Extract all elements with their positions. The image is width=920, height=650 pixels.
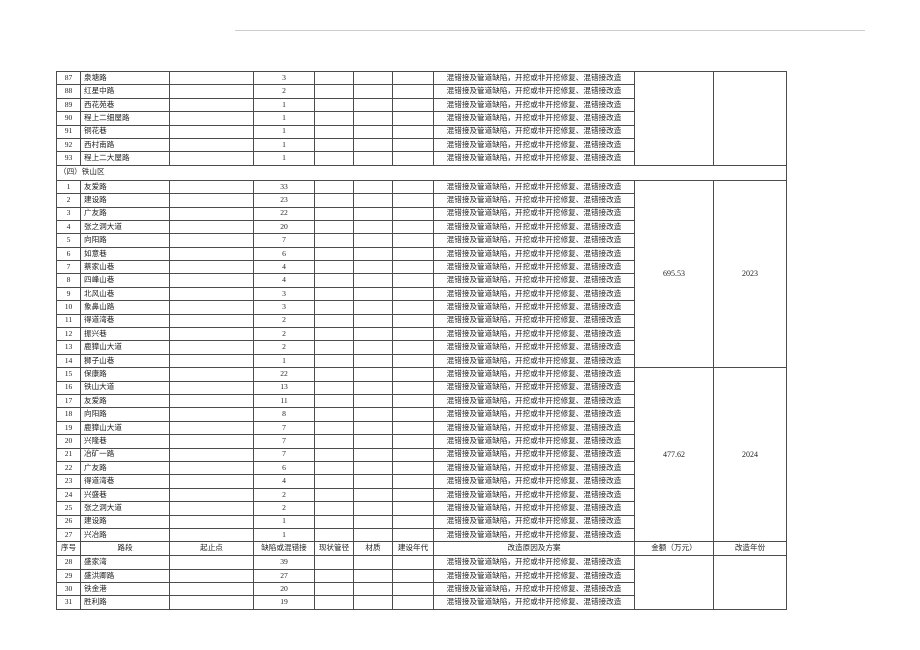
cell-road: 向阳路 [81, 408, 170, 421]
column-header-reason: 改造原因及方案 [434, 542, 635, 556]
cell-seq: 22 [57, 461, 81, 474]
cell-era [393, 152, 434, 165]
cell-pipe [315, 596, 354, 609]
cell-road: 西花苑巷 [81, 98, 170, 111]
cell-road: 张之洞大道 [81, 220, 170, 233]
cell-defect: 7 [254, 435, 315, 448]
cell-road: 兴隆巷 [81, 435, 170, 448]
cell-reason: 混错接及管道缺陷，开挖或非开挖修复、混错接改造 [434, 220, 635, 233]
cell-seq: 92 [57, 138, 81, 151]
cell-era [393, 421, 434, 434]
cell-seq: 5 [57, 234, 81, 247]
column-header-era: 建设年代 [393, 542, 434, 556]
cell-pipe [315, 261, 354, 274]
cell-road: 象鼻山路 [81, 301, 170, 314]
renovation-plan-table-container: 87泉塘路3混错接及管道缺陷，开挖或非开挖修复、混错接改造88红星中路2混错接及… [56, 71, 787, 610]
cell-road: 如意巷 [81, 247, 170, 260]
cell-seq: 90 [57, 112, 81, 125]
cell-road: 兴盛巷 [81, 488, 170, 501]
cell-era [393, 596, 434, 609]
cell-pipe [315, 368, 354, 381]
cell-reason: 混错接及管道缺陷，开挖或非开挖修复、混错接改造 [434, 421, 635, 434]
cell-material [354, 583, 393, 596]
cell-seq: 25 [57, 502, 81, 515]
cell-era [393, 112, 434, 125]
cell-defect: 3 [254, 72, 315, 85]
cell-seq: 4 [57, 220, 81, 233]
cell-material [354, 569, 393, 582]
cell-era [393, 72, 434, 85]
cell-era [393, 125, 434, 138]
cell-pipe [315, 408, 354, 421]
cell-material [354, 435, 393, 448]
cell-startend [170, 220, 254, 233]
cell-material [354, 207, 393, 220]
column-header-startend: 起止点 [170, 542, 254, 556]
cell-road: 得道湾巷 [81, 475, 170, 488]
cell-startend [170, 125, 254, 138]
cell-reason: 混错接及管道缺陷，开挖或非开挖修复、混错接改造 [434, 98, 635, 111]
cell-startend [170, 261, 254, 274]
cell-defect: 6 [254, 461, 315, 474]
cell-pipe [315, 194, 354, 207]
cell-reason: 混错接及管道缺陷，开挖或非开挖修复、混错接改造 [434, 569, 635, 582]
cell-defect: 1 [254, 515, 315, 528]
cell-pipe [315, 314, 354, 327]
cell-reason: 混错接及管道缺陷，开挖或非开挖修复、混错接改造 [434, 556, 635, 569]
cell-material [354, 368, 393, 381]
cell-road: 建设路 [81, 515, 170, 528]
section-row-label: （四）铁山区 [57, 165, 787, 180]
cell-seq: 31 [57, 596, 81, 609]
cell-startend [170, 287, 254, 300]
cell-road: 鹿獐山大道 [81, 341, 170, 354]
cell-pipe [315, 72, 354, 85]
cell-startend [170, 502, 254, 515]
cell-startend [170, 85, 254, 98]
cell-amount-merged [635, 72, 714, 166]
cell-era [393, 368, 434, 381]
cell-material [354, 72, 393, 85]
cell-reason: 混错接及管道缺陷，开挖或非开挖修复、混错接改造 [434, 152, 635, 165]
cell-reason: 混错接及管道缺陷，开挖或非开挖修复、混错接改造 [434, 261, 635, 274]
cell-seq: 10 [57, 301, 81, 314]
cell-road: 狮子山巷 [81, 354, 170, 367]
scanned-document-page: 87泉塘路3混错接及管道缺陷，开挖或非开挖修复、混错接改造88红星中路2混错接及… [0, 0, 920, 650]
cell-era [393, 287, 434, 300]
cell-startend [170, 234, 254, 247]
cell-startend [170, 138, 254, 151]
cell-era [393, 461, 434, 474]
cell-startend [170, 394, 254, 407]
cell-pipe [315, 556, 354, 569]
cell-defect: 39 [254, 556, 315, 569]
cell-material [354, 448, 393, 461]
cell-road: 建设路 [81, 194, 170, 207]
cell-seq: 16 [57, 381, 81, 394]
cell-road: 鹿獐山大道 [81, 421, 170, 434]
cell-road: 四峰山巷 [81, 274, 170, 287]
cell-seq: 89 [57, 98, 81, 111]
cell-material [354, 341, 393, 354]
cell-seq: 3 [57, 207, 81, 220]
cell-era [393, 394, 434, 407]
cell-seq: 9 [57, 287, 81, 300]
cell-material [354, 125, 393, 138]
cell-pipe [315, 152, 354, 165]
cell-pipe [315, 98, 354, 111]
cell-pipe [315, 125, 354, 138]
cell-reason: 混错接及管道缺陷，开挖或非开挖修复、混错接改造 [434, 354, 635, 367]
cell-material [354, 112, 393, 125]
cell-startend [170, 488, 254, 501]
cell-pipe [315, 341, 354, 354]
cell-defect: 27 [254, 569, 315, 582]
column-header-row: 序号路段起止点缺陷或混错接现状管径材质建设年代改造原因及方案金额（万元）改造年份 [57, 542, 787, 556]
cell-defect: 8 [254, 408, 315, 421]
cell-seq: 13 [57, 341, 81, 354]
cell-defect: 13 [254, 381, 315, 394]
cell-reason: 混错接及管道缺陷，开挖或非开挖修复、混错接改造 [434, 448, 635, 461]
cell-reason: 混错接及管道缺陷，开挖或非开挖修复、混错接改造 [434, 328, 635, 341]
cell-era [393, 220, 434, 233]
cell-pipe [315, 583, 354, 596]
cell-road: 振兴巷 [81, 328, 170, 341]
cell-reason: 混错接及管道缺陷，开挖或非开挖修复、混错接改造 [434, 85, 635, 98]
cell-startend [170, 194, 254, 207]
cell-material [354, 314, 393, 327]
cell-defect: 11 [254, 394, 315, 407]
cell-era [393, 98, 434, 111]
cell-material [354, 152, 393, 165]
cell-era [393, 274, 434, 287]
cell-defect: 22 [254, 368, 315, 381]
column-header-amount: 金额（万元） [635, 542, 714, 556]
cell-seq: 91 [57, 125, 81, 138]
cell-startend [170, 435, 254, 448]
column-header-year: 改造年份 [714, 542, 787, 556]
cell-reason: 混错接及管道缺陷，开挖或非开挖修复、混错接改造 [434, 180, 635, 193]
cell-reason: 混错接及管道缺陷，开挖或非开挖修复、混错接改造 [434, 138, 635, 151]
cell-pipe [315, 274, 354, 287]
cell-era [393, 583, 434, 596]
cell-startend [170, 421, 254, 434]
cell-defect: 20 [254, 583, 315, 596]
cell-defect: 1 [254, 112, 315, 125]
cell-startend [170, 354, 254, 367]
cell-startend [170, 448, 254, 461]
cell-era [393, 261, 434, 274]
cell-era [393, 475, 434, 488]
cell-defect: 3 [254, 301, 315, 314]
cell-seq: 27 [57, 528, 81, 541]
cell-road: 西村南路 [81, 138, 170, 151]
cell-year-merged: 2024 [714, 368, 787, 542]
cell-startend [170, 515, 254, 528]
cell-reason: 混错接及管道缺陷，开挖或非开挖修复、混错接改造 [434, 274, 635, 287]
cell-material [354, 234, 393, 247]
cell-startend [170, 528, 254, 541]
cell-material [354, 274, 393, 287]
section-row: （四）铁山区 [57, 165, 787, 180]
cell-seq: 23 [57, 475, 81, 488]
cell-startend [170, 112, 254, 125]
cell-era [393, 207, 434, 220]
cell-pipe [315, 354, 354, 367]
cell-pipe [315, 180, 354, 193]
cell-amount-merged [635, 556, 714, 610]
cell-road: 泉塘路 [81, 72, 170, 85]
cell-road: 友爱路 [81, 394, 170, 407]
cell-seq: 87 [57, 72, 81, 85]
cell-material [354, 194, 393, 207]
cell-road: 蔡家山巷 [81, 261, 170, 274]
cell-defect: 4 [254, 274, 315, 287]
cell-road: 得道湾巷 [81, 314, 170, 327]
cell-pipe [315, 435, 354, 448]
cell-reason: 混错接及管道缺陷，开挖或非开挖修复、混错接改造 [434, 207, 635, 220]
cell-reason: 混错接及管道缺陷，开挖或非开挖修复、混错接改造 [434, 435, 635, 448]
cell-road: 北风山巷 [81, 287, 170, 300]
cell-road: 冶矿一路 [81, 448, 170, 461]
cell-material [354, 528, 393, 541]
cell-year-merged [714, 556, 787, 610]
cell-reason: 混错接及管道缺陷，开挖或非开挖修复、混错接改造 [434, 596, 635, 609]
cell-pipe [315, 220, 354, 233]
cell-material [354, 98, 393, 111]
column-header-seq: 序号 [57, 542, 81, 556]
cell-pipe [315, 394, 354, 407]
cell-defect: 20 [254, 220, 315, 233]
cell-pipe [315, 234, 354, 247]
cell-defect: 1 [254, 98, 315, 111]
cell-pipe [315, 138, 354, 151]
cell-era [393, 341, 434, 354]
cell-reason: 混错接及管道缺陷，开挖或非开挖修复、混错接改造 [434, 461, 635, 474]
cell-era [393, 328, 434, 341]
cell-startend [170, 556, 254, 569]
cell-seq: 14 [57, 354, 81, 367]
cell-pipe [315, 475, 354, 488]
cell-material [354, 556, 393, 569]
cell-material [354, 354, 393, 367]
cell-era [393, 85, 434, 98]
cell-material [354, 328, 393, 341]
cell-seq: 6 [57, 247, 81, 260]
cell-road: 盛洪卿路 [81, 569, 170, 582]
cell-startend [170, 301, 254, 314]
cell-seq: 8 [57, 274, 81, 287]
cell-seq: 2 [57, 194, 81, 207]
cell-seq: 88 [57, 85, 81, 98]
cell-startend [170, 408, 254, 421]
cell-pipe [315, 247, 354, 260]
cell-reason: 混错接及管道缺陷，开挖或非开挖修复、混错接改造 [434, 583, 635, 596]
cell-material [354, 301, 393, 314]
column-header-road: 路段 [81, 542, 170, 556]
scan-artifact-line [235, 30, 865, 31]
cell-defect: 7 [254, 421, 315, 434]
cell-startend [170, 98, 254, 111]
renovation-plan-table: 87泉塘路3混错接及管道缺陷，开挖或非开挖修复、混错接改造88红星中路2混错接及… [56, 71, 787, 610]
cell-pipe [315, 381, 354, 394]
cell-defect: 2 [254, 488, 315, 501]
cell-era [393, 569, 434, 582]
cell-seq: 7 [57, 261, 81, 274]
cell-seq: 29 [57, 569, 81, 582]
cell-seq: 21 [57, 448, 81, 461]
cell-startend [170, 596, 254, 609]
table-row: 1友爱路33混错接及管道缺陷，开挖或非开挖修复、混错接改造695.532023 [57, 180, 787, 193]
cell-defect: 3 [254, 287, 315, 300]
cell-reason: 混错接及管道缺陷，开挖或非开挖修复、混错接改造 [434, 502, 635, 515]
cell-era [393, 381, 434, 394]
cell-road: 广友路 [81, 207, 170, 220]
cell-reason: 混错接及管道缺陷，开挖或非开挖修复、混错接改造 [434, 528, 635, 541]
cell-pipe [315, 448, 354, 461]
cell-pipe [315, 328, 354, 341]
cell-amount-merged: 695.53 [635, 180, 714, 367]
cell-defect: 33 [254, 180, 315, 193]
cell-era [393, 502, 434, 515]
cell-seq: 26 [57, 515, 81, 528]
cell-seq: 15 [57, 368, 81, 381]
cell-material [354, 85, 393, 98]
cell-pipe [315, 112, 354, 125]
cell-era [393, 448, 434, 461]
cell-reason: 混错接及管道缺陷，开挖或非开挖修复、混错接改造 [434, 314, 635, 327]
cell-seq: 18 [57, 408, 81, 421]
cell-defect: 1 [254, 138, 315, 151]
cell-reason: 混错接及管道缺陷，开挖或非开挖修复、混错接改造 [434, 341, 635, 354]
cell-startend [170, 314, 254, 327]
cell-pipe [315, 502, 354, 515]
cell-pipe [315, 569, 354, 582]
cell-reason: 混错接及管道缺陷，开挖或非开挖修复、混错接改造 [434, 301, 635, 314]
cell-defect: 1 [254, 354, 315, 367]
cell-reason: 混错接及管道缺陷，开挖或非开挖修复、混错接改造 [434, 381, 635, 394]
cell-startend [170, 569, 254, 582]
cell-material [354, 515, 393, 528]
cell-era [393, 180, 434, 193]
cell-reason: 混错接及管道缺陷，开挖或非开挖修复、混错接改造 [434, 515, 635, 528]
cell-defect: 2 [254, 328, 315, 341]
cell-startend [170, 152, 254, 165]
cell-startend [170, 207, 254, 220]
cell-reason: 混错接及管道缺陷，开挖或非开挖修复、混错接改造 [434, 368, 635, 381]
cell-pipe [315, 515, 354, 528]
cell-startend [170, 247, 254, 260]
cell-material [354, 475, 393, 488]
cell-reason: 混错接及管道缺陷，开挖或非开挖修复、混错接改造 [434, 112, 635, 125]
cell-defect: 2 [254, 502, 315, 515]
cell-road: 张之洞大道 [81, 502, 170, 515]
cell-road: 红星中路 [81, 85, 170, 98]
cell-road: 广友路 [81, 461, 170, 474]
cell-startend [170, 381, 254, 394]
table-row: 28盛家湾39混错接及管道缺陷，开挖或非开挖修复、混错接改造 [57, 556, 787, 569]
cell-defect: 1 [254, 152, 315, 165]
cell-startend [170, 475, 254, 488]
cell-startend [170, 341, 254, 354]
cell-era [393, 247, 434, 260]
cell-road: 程上二细屋路 [81, 112, 170, 125]
cell-material [354, 261, 393, 274]
cell-defect: 19 [254, 596, 315, 609]
cell-seq: 19 [57, 421, 81, 434]
cell-road: 盛家湾 [81, 556, 170, 569]
cell-seq: 28 [57, 556, 81, 569]
cell-material [354, 421, 393, 434]
cell-seq: 24 [57, 488, 81, 501]
cell-reason: 混错接及管道缺陷，开挖或非开挖修复、混错接改造 [434, 408, 635, 421]
cell-road: 铁金港 [81, 583, 170, 596]
cell-road: 铜花巷 [81, 125, 170, 138]
cell-pipe [315, 528, 354, 541]
cell-defect: 22 [254, 207, 315, 220]
cell-defect: 6 [254, 247, 315, 260]
cell-defect: 7 [254, 234, 315, 247]
column-header-material: 材质 [354, 542, 393, 556]
cell-road: 友爱路 [81, 180, 170, 193]
cell-material [354, 381, 393, 394]
cell-material [354, 502, 393, 515]
cell-era [393, 435, 434, 448]
cell-material [354, 596, 393, 609]
cell-era [393, 528, 434, 541]
cell-era [393, 408, 434, 421]
cell-material [354, 461, 393, 474]
cell-era [393, 556, 434, 569]
cell-seq: 30 [57, 583, 81, 596]
cell-amount-merged: 477.62 [635, 368, 714, 542]
cell-material [354, 247, 393, 260]
cell-seq: 11 [57, 314, 81, 327]
cell-era [393, 314, 434, 327]
cell-material [354, 394, 393, 407]
cell-material [354, 180, 393, 193]
cell-reason: 混错接及管道缺陷，开挖或非开挖修复、混错接改造 [434, 125, 635, 138]
cell-startend [170, 328, 254, 341]
cell-reason: 混错接及管道缺陷，开挖或非开挖修复、混错接改造 [434, 234, 635, 247]
cell-era [393, 138, 434, 151]
cell-era [393, 354, 434, 367]
cell-reason: 混错接及管道缺陷，开挖或非开挖修复、混错接改造 [434, 194, 635, 207]
cell-defect: 4 [254, 261, 315, 274]
cell-defect: 1 [254, 125, 315, 138]
cell-material [354, 488, 393, 501]
cell-material [354, 220, 393, 233]
cell-defect: 23 [254, 194, 315, 207]
cell-road: 保康路 [81, 368, 170, 381]
cell-defect: 7 [254, 448, 315, 461]
cell-road: 兴冶路 [81, 528, 170, 541]
cell-startend [170, 72, 254, 85]
cell-startend [170, 180, 254, 193]
column-header-pipe: 现状管径 [315, 542, 354, 556]
cell-road: 向阳路 [81, 234, 170, 247]
cell-year-merged [714, 72, 787, 166]
cell-startend [170, 583, 254, 596]
cell-era [393, 194, 434, 207]
cell-era [393, 234, 434, 247]
cell-seq: 12 [57, 328, 81, 341]
cell-reason: 混错接及管道缺陷，开挖或非开挖修复、混错接改造 [434, 475, 635, 488]
table-row: 87泉塘路3混错接及管道缺陷，开挖或非开挖修复、混错接改造 [57, 72, 787, 85]
cell-defect: 2 [254, 314, 315, 327]
cell-road: 程上二大屋路 [81, 152, 170, 165]
cell-material [354, 287, 393, 300]
